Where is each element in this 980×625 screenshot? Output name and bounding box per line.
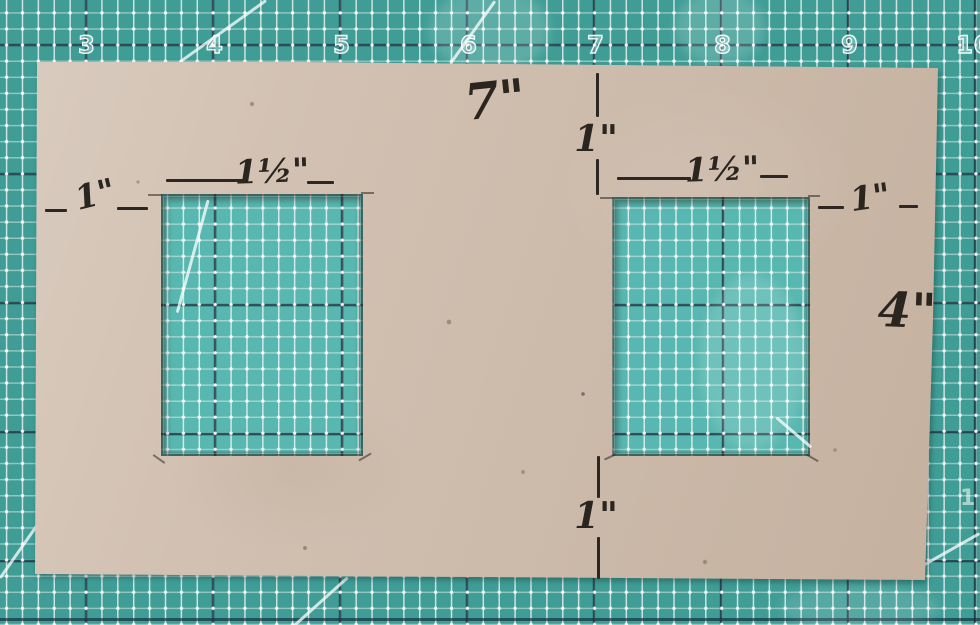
cut-overshoot-mark — [361, 192, 374, 194]
dimension-line-left-window-width — [307, 181, 334, 184]
dimension-label-total-width: 7" — [462, 72, 528, 128]
dimension-line-right-margin — [899, 205, 918, 208]
mat-sheen — [700, 275, 805, 450]
dimension-line-left-margin — [45, 209, 67, 212]
photo-cutting-mat-scene: 3 4 5 6 7 8 9 10 1 — [0, 0, 980, 625]
cut-overshoot-mark — [808, 195, 820, 197]
dimension-line-right-margin — [818, 206, 844, 209]
cut-overshoot-mark — [148, 194, 162, 196]
dimension-label-left-window-width: 1½" — [234, 153, 310, 189]
dimension-line-left-window-width — [166, 179, 244, 182]
left-cutout-window — [161, 194, 363, 456]
dimension-label-top-margin: 1" — [574, 121, 618, 157]
dimension-line-right-window-width — [617, 177, 691, 180]
dimension-line-bottom-margin — [597, 537, 600, 579]
dimension-line-top-margin — [596, 73, 599, 117]
dimension-line-bottom-margin — [597, 456, 600, 498]
dimension-label-left-margin: 1" — [72, 173, 119, 215]
dimension-line-top-margin — [596, 159, 599, 195]
dimension-label-total-height: 4" — [877, 286, 937, 336]
cut-overshoot-mark — [600, 197, 613, 199]
dimension-label-right-window-width: 1½" — [684, 151, 760, 187]
dimension-label-bottom-margin: 1" — [574, 498, 618, 534]
dimension-line-left-margin — [117, 207, 148, 210]
dimension-line-right-window-width — [760, 175, 788, 178]
dimension-label-right-margin: 1" — [848, 178, 892, 216]
